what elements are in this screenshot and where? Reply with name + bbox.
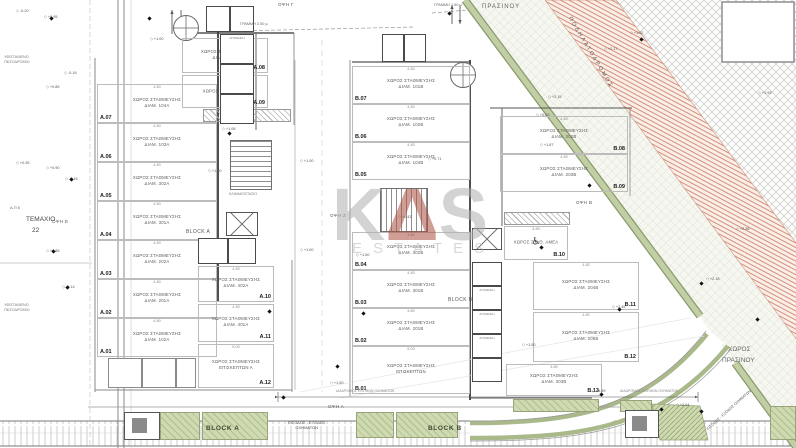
- sidewalk-note-line1: ΥΦΙΣΤΑΜΕΝΟ: [4, 303, 29, 307]
- stall-apartment-label: ΔΙΑΜ. 301Β: [399, 288, 424, 293]
- stall-dimension: 4.80: [98, 202, 216, 206]
- stall-label: ΧΩΡΟΣ ΣΤΑΘΜΕΥΣΗΣΔΙΑΜ. 301Α: [98, 213, 216, 225]
- stall-dimension: 4.80: [199, 267, 273, 271]
- sidewalk-note-top: ΥΦΙΣΤΑΜΕΝΟ ΠΕΖΟΔΡΟΜΙΟ: [4, 55, 30, 64]
- elevation-diamond-icon: ◇: [398, 215, 401, 219]
- facade-label: ΟΨΗ Β: [576, 200, 592, 205]
- block-a-bottom-label: BLOCK A: [206, 425, 240, 432]
- elevation-value: +1.00: [304, 248, 314, 252]
- sidewalk-note-line2: ΠΕΖΟΔΡΟΜΙΟ: [4, 308, 30, 312]
- stall-use-label: ΧΩΡΟΣ ΣΤΑΘΜΕΥΣΗΣ: [133, 174, 181, 179]
- stall-id: B.03: [355, 300, 367, 306]
- elevation-diamond-icon: ◇: [736, 227, 739, 231]
- parking-stall: 4.80ΧΩΡΟΣ ΣΤΑΘΜΕΥΣΗΣΔΙΑΜ. 103ΑA.06: [97, 123, 217, 162]
- storage-cell: ΑΠΟΘΗΚΗ: [472, 334, 502, 358]
- planter: [513, 399, 599, 412]
- corridor-label-right: ΔΙΑΔΡΟΜΟΣ ΕΛΙΓΜΩΝ ΟΧΗΜΑΤΩΝ: [620, 389, 678, 393]
- parking-stall: 4.80ΧΩΡΟΣ ΣΤΑΘΜΕΥΣΗΣΔΙΑΜ. 302ΑA.05: [97, 162, 217, 201]
- elevation-diamond-icon: ◇: [65, 177, 68, 181]
- parking-stall: 4.80ΧΩΡΟΣ ΣΤΑΘΜΕΥΣΗΣΔΙΑΜ. 102ΒB.06: [352, 104, 470, 142]
- elevation-diamond-icon: ◇: [64, 71, 67, 75]
- elevation-value: +1.93: [762, 91, 772, 95]
- elevation-marker: ◇+1.00: [150, 36, 164, 41]
- stall-apartment-label: ΔΙΑΜ. 102Β: [399, 122, 424, 127]
- stall-apartment-label: ΔΙΑΜ. 202Β: [552, 134, 577, 139]
- elevation-diamond-icon: ◇: [44, 15, 47, 19]
- block-b-label: BLOCK B: [448, 297, 472, 303]
- elevation-value: +0.35: [20, 161, 30, 165]
- stall-label: ΧΩΡΟΣ ΣΤΑΘΜΕΥΣΗΣΔΙΑΜ. 102Β: [353, 116, 469, 128]
- stall-label: ΧΩΡΟΣ ΣΤΑΘΜΕΥΣΗΣΔΙΑΜ. 101Β: [353, 78, 469, 90]
- planter: [356, 412, 394, 438]
- elevation-diamond-icon: ◇: [522, 343, 525, 347]
- elevation-diamond-icon: ◇: [706, 277, 709, 281]
- elevation-diamond-icon: ◇: [548, 95, 551, 99]
- stall-label: ΧΩΡΟΣ ΣΤΑΘΜΕΥΣΗΣΔΙΑΜ. 401Α: [199, 316, 273, 328]
- elevation-diamond-icon: ◇: [676, 403, 679, 407]
- elevation-marker: ◇+1.89: [592, 388, 606, 393]
- elevation-diamond-icon: ◇: [46, 85, 49, 89]
- elevation-marker: ◇+1.00: [300, 247, 314, 252]
- elevation-marker: ◇+1.87: [540, 142, 554, 147]
- elevation-value: +2.15: [552, 95, 562, 99]
- stall-apartment-label: ΔΙΑΜ. 103Α: [145, 142, 170, 147]
- stall-label: ΧΩΡΟΣ ΣΤΑΘΜΕΥΣΗΣΔΙΑΜ. 302Α: [98, 174, 216, 186]
- stall-label: ΧΩΡΟΣ ΣΤΑΘΜΕΥΣΗΣΔΙΑΜ. 303Β: [507, 373, 601, 385]
- elevation-diamond-icon: ◇: [208, 169, 211, 173]
- storage-cell: [230, 6, 254, 32]
- stall-use-label: ΧΩΡΟΣ ΣΤΑΘΜΕΥΣΗΣ: [212, 316, 260, 321]
- stall-id: A.03: [100, 271, 112, 277]
- stall-use-label: ΧΩΡΟΣ ΣΤΑΘΜΕΥΣΗΣ: [387, 116, 435, 121]
- elevation-diamond-icon: ◇: [630, 31, 633, 35]
- stall-label: ΧΩΡΟΣ ΣΤΑΘΜΕΥΣΗΣΔΙΑΜ. 103Α: [98, 135, 216, 147]
- setback-line-250-label: ΓΡΑΜΜΗ 2.50 μ: [240, 22, 268, 26]
- elevation-diamond-icon: ◇: [300, 159, 303, 163]
- elevation-diamond-icon: ◇: [356, 253, 359, 257]
- storage-cell: [206, 6, 230, 32]
- elevation-value: +0.63: [540, 113, 550, 117]
- stall-label: ΧΩΡΟΣ ΣΤΑΘΜΕΥΣΗΣΔΙΑΜ. 302Β: [353, 244, 469, 256]
- setback-line-150-label: ΓΡΑΜΜΗ 1.50 μ: [434, 3, 462, 7]
- stall-use-label: ΧΩΡΟΣ ΣΤΑΘΜΕΥΣΗΣ: [133, 330, 181, 335]
- sidewalk-note-bottom: ΥΦΙΣΤΑΜΕΝΟ ΠΕΖΟΔΡΟΜΙΟ: [4, 303, 30, 312]
- elevation-marker: ◇+0.43: [398, 214, 412, 219]
- stall-id: A.09: [253, 100, 265, 106]
- block-b-bottom-label: BLOCK B: [428, 425, 462, 432]
- stall-id: A.07: [100, 115, 112, 121]
- stall-dimension: 4.80: [353, 67, 469, 71]
- stall-dimension: 5.00: [199, 345, 273, 349]
- stall-use-label: ΧΩΡΟΣ ΣΤΑΘΜΕΥΣΗΣ: [212, 277, 260, 282]
- elevation-value: +0.43: [402, 215, 412, 219]
- stall-label: ΧΩΡΟΣ ΣΤΑΘΜΕΥΣΗΣΕΠΙΣΚΕΠΤΩΝ: [353, 363, 469, 375]
- storage-cell: [220, 94, 254, 124]
- elevation-marker: ◇-0.16: [64, 70, 77, 75]
- stall-dimension: 4.80: [353, 143, 469, 147]
- stair-block-a: [230, 140, 272, 190]
- parking-stall: 4.80ΧΩΡΟΣ ΣΤΑΘΜΕΥΣΗΣΔΙΑΜ. 402ΑA.10: [198, 266, 274, 302]
- stall-id: A.04: [100, 232, 112, 238]
- utility-box: [124, 412, 160, 440]
- parking-stall: 4.80ΧΩΡΟΣ ΣΤΑΘΜΕΥΣΗΣΔΙΑΜ. 104ΒB.05: [352, 142, 470, 180]
- stall-use-label: ΧΩΡΟΣ ΣΤΑΘΜΕΥΣΗΣ: [133, 213, 181, 218]
- stall-label: ΧΩΡΟΣ ΣΤΑΘΜΕΥΣΗΣΔΙΑΜ. 205Β: [534, 330, 638, 342]
- elevation-diamond-icon: ◇: [536, 113, 539, 117]
- stall-label: ΧΩΡΟΣ ΣΤΑΘΜΕΥΣΗΣΔΙΑΜ. 402Α: [199, 277, 273, 289]
- elevation-diamond-icon: ◇: [540, 143, 543, 147]
- stall-dimension: 4.80: [353, 271, 469, 275]
- storage-cell: ΑΠΟΘΗΚΗ: [472, 310, 502, 334]
- stall-dimension: 4.80: [98, 163, 216, 167]
- elevation-marker: ◇+1.93: [758, 90, 772, 95]
- vehicle-entry-label: ΕΙΣΟΔΟΣ - ΕΞΟΔΟΣ ΟΧΗΜΑΤΩΝ: [288, 420, 325, 430]
- elevation-value: +2.17: [608, 47, 618, 51]
- parking-stall: 4.80ΧΩΡΟΣ ΣΤΑΘΜΕΥΣΗΣΔΙΑΜ. 202ΒB.08: [500, 116, 628, 154]
- service-hatch-block-b: [504, 212, 570, 225]
- elevation-value: +1.87: [544, 143, 554, 147]
- stall-apartment-label: ΕΠΙΣΚΕΠΤΩΝ Α: [219, 365, 253, 370]
- parking-stall: 4.80ΧΩΡΟΣ ΣΤΑΘΜΕΥΣΗΣΔΙΑΜ. 204ΒB.11: [533, 262, 639, 310]
- facade-label: ΟΨΗ Ε: [52, 219, 68, 224]
- sidewalk-note-line2: ΠΕΖΟΔΡΟΜΙΟ: [4, 60, 30, 64]
- storage-cell: [472, 262, 502, 286]
- stall-label: ΧΩΡΟΣ ΣΤΑΘΜΕΥΣΗΣΔΙΑΜ. 301Β: [353, 282, 469, 294]
- elevation-diamond-icon: ◇: [46, 249, 49, 253]
- elevation-diamond-icon: ◇: [758, 91, 761, 95]
- storage-cell: [198, 238, 228, 264]
- stall-label: ΧΩΡΟΣ ΣΤΑΘΜΕΥΣΗΣΔΙΑΜ. 203Β: [501, 166, 627, 178]
- stall-apartment-label: ΔΙΑΜ. 402Α: [224, 283, 249, 288]
- stall-apartment-label: ΔΙΑΜ. 302Β: [399, 250, 424, 255]
- stall-dimension: 4.80: [353, 309, 469, 313]
- stall-id: A.08: [253, 65, 265, 71]
- stall-dimension: 5.00: [353, 347, 469, 351]
- elevation-diamond-icon: ◇: [330, 381, 333, 385]
- green-space-label-line1: ΧΩΡΟΣ: [728, 346, 751, 353]
- elevation-diamond-icon: ◇: [592, 389, 595, 393]
- stall-use-label: ΧΩΡΟΣ ΣΤΑΘΜΕΥΣΗΣ: [133, 135, 181, 140]
- stall-id: A.01: [100, 349, 112, 355]
- elevation-diamond-icon: ◇: [150, 37, 153, 41]
- elevation-value: +0.85: [50, 85, 60, 89]
- green-area-label-top: ΠΡΑΣΙΝΟΥ: [482, 4, 520, 10]
- stall-apartment-label: ΔΙΑΜ. 301Α: [145, 220, 170, 225]
- floor-plan-canvas: KΔS ESTATES ΠΡΑΣΙΝΟΥ ΠΟΔΗΛΑΤΟΔΡΟΜΟΣ ΧΩΡΟ…: [0, 0, 796, 448]
- elevation-value: +1.02: [634, 31, 644, 35]
- stall-id: A.10: [259, 294, 271, 300]
- storage-cell: [108, 358, 142, 388]
- stall-dimension: 4.80: [507, 365, 601, 369]
- stall-apartment-label: ΔΙΑΜ. 401Α: [224, 322, 249, 327]
- stall-label: ΧΩΡΟΣ ΣΤΑΘΜΕΥΣΗΣΔΙΑΜ. 204Β: [534, 279, 638, 291]
- stall-id: B.02: [355, 338, 367, 344]
- elevation-diamond-icon: ◇: [16, 161, 19, 165]
- elevation-diamond-icon: ◇: [222, 127, 225, 131]
- storage-cell: [220, 64, 254, 94]
- stall-apartment-label: ΔΙΑΜ. 104Β: [399, 160, 424, 165]
- facade-label: ΟΨΗ Α: [328, 404, 344, 409]
- sidewalk-note-line1: ΥΦΙΣΤΑΜΕΝΟ: [4, 55, 29, 59]
- stall-id: A.06: [100, 154, 112, 160]
- elevation-diamond-icon: ◇: [428, 157, 431, 161]
- elevation-marker: ◇+2.36: [736, 226, 750, 231]
- stall-label: ΧΩΡΟΣ ΣΤΑΘΜΕΥΣΗΣΕΠΙΣΚΕΠΤΩΝ Α: [199, 359, 273, 371]
- elevation-value: +2.36: [740, 227, 750, 231]
- stall-dimension: 4.80: [353, 105, 469, 109]
- stall-id: A.02: [100, 310, 112, 316]
- elevation-value: -0.16: [68, 71, 77, 75]
- stall-dimension: 4.80: [98, 124, 216, 128]
- elevator-block-a: [226, 212, 258, 236]
- stall-id: A.12: [259, 380, 271, 386]
- stall-id: B.08: [613, 146, 625, 152]
- stall-dimension: 4.80: [534, 313, 638, 317]
- stall-id: B.07: [355, 96, 367, 102]
- utility-box: [625, 410, 659, 438]
- elevation-marker: ◇+0.35: [16, 160, 30, 165]
- elevation-value: +1.50: [334, 381, 344, 385]
- entry-line2: ΟΧΗΜΑΤΩΝ: [295, 425, 318, 430]
- parking-stall: 4.80ΧΩΡΟΣ ΣΤΑΘΜΕΥΣΗΣΔΙΑΜ. 205ΒB.12: [533, 312, 639, 362]
- stall-use-label: ΧΩΡΟΣ ΣΤΑΘΜΕΥΣΗΣ: [387, 282, 435, 287]
- stall-id: B.12: [624, 354, 636, 360]
- elevation-diamond-icon: ◇: [612, 305, 615, 309]
- green-space-label-line2: ΠΡΑΣΙΝΟΥ: [722, 357, 755, 364]
- parking-stall: 4.80ΧΩΡΟΣ ΣΤΑΘΜΕΥΣΗΣΔΙΑΜ. 302ΒB.04: [352, 232, 470, 270]
- elevation-value: +0.71: [432, 157, 442, 161]
- stall-use-label: ΧΩΡΟΣ ΣΤΑΘΜΕΥΣΗΣ: [562, 330, 610, 335]
- elevation-marker: ◇+1.50: [522, 342, 536, 347]
- parking-stall: 5.00ΧΩΡΟΣ ΣΤΑΘΜΕΥΣΗΣΕΠΙΣΚΕΠΤΩΝB.01: [352, 346, 470, 394]
- plot-number: 22: [32, 227, 39, 234]
- storage-cell: ΑΠΟΘΗΚΗ: [472, 286, 502, 310]
- parking-stall: 4.80ΧΩΡΟΣ ΣΤΑΘΜΕΥΣΗΣΔΙΑΜ. 303ΒB.13: [506, 364, 602, 396]
- elevation-marker: ◇+1.02: [630, 30, 644, 35]
- stall-use-label: ΧΩΡΟΣ ΣΤΑΘΜΕΥΣΗΣ: [387, 78, 435, 83]
- elevation-value: +2.18: [710, 277, 720, 281]
- elevation-marker: ◇+2.64: [676, 402, 690, 407]
- stall-id: B.05: [355, 172, 367, 178]
- stall-use-label: ΧΩΡΟΣ ΣΤΑΘΜΕΥΣΗΣ: [562, 279, 610, 284]
- stall-apartment-label: ΔΙΑΜ. 102Α: [145, 337, 170, 342]
- storage-cell: [142, 358, 176, 388]
- corridor-label-left: ΔΙΑΔΡΟΜΟΣ ΕΛΙΓΜΩΝ ΟΧΗΜΑΤΩΝ: [336, 389, 394, 393]
- planter: [160, 412, 200, 440]
- elevation-value: +1.50: [212, 169, 222, 173]
- storage-cell: [472, 358, 502, 382]
- elevation-value: +2.64: [680, 403, 690, 407]
- stall-dimension: 4.80: [501, 155, 627, 159]
- elevation-marker: ◇+1.00: [300, 158, 314, 163]
- stall-use-label: ΧΩΡΟΣ ΣΤΑΘΜΕΥΣΗΣ: [530, 373, 578, 378]
- stall-dimension: 4.80: [501, 117, 627, 121]
- stall-id: B.04: [355, 262, 367, 268]
- stall-apartment-label: ΔΙΑΜ. 202Α: [145, 259, 170, 264]
- elevation-value: +1.06: [226, 127, 236, 131]
- stall-dimension: 4.80: [505, 227, 567, 231]
- elevation-marker: ◇+0.71: [428, 156, 442, 161]
- stall-apartment-label: ΔΙΑΜ. 205Β: [574, 336, 599, 341]
- stall-apartment-label: ΕΠΙΣΚΕΠΤΩΝ: [396, 369, 426, 374]
- stall-label: ΧΩΡΟΣ ΣΤΑΘΜΕΥΣΗΣΔΙΑΜ. 104Β: [353, 154, 469, 166]
- elevation-marker: ◇+1.50: [356, 252, 370, 257]
- elevation-value: +1.50: [360, 253, 370, 257]
- elevation-marker: ◇-0.20: [16, 8, 29, 13]
- elevation-diamond-icon: ◇: [46, 166, 49, 170]
- stall-id: A.05: [100, 193, 112, 199]
- stall-id: A.11: [260, 334, 271, 340]
- elevation-value: +1.00: [154, 37, 164, 41]
- planter: [770, 406, 796, 440]
- storage-cell: ΑΠΟΘΗΚΗ: [220, 34, 254, 64]
- stall-use-label: ΧΩΡΟΣ ΣΤΑΘΜΕΥΣΗΣ: [387, 363, 435, 368]
- stall-use-label: ΧΩΡΟΣ ΣΤΑΘΜΕΥΣΗΣ: [387, 244, 435, 249]
- stall-label: ΧΩΡΟΣ ΣΤΑΘΜΕΥΣΗΣΔΙΑΜ. 202Β: [501, 128, 627, 140]
- stall-use-label: ΧΩΡΟΣ ΣΤΑΘΜΕΥΣΗΣ: [212, 359, 260, 364]
- stair-block-b: [380, 188, 428, 232]
- elevation-marker: ◇+2.17: [604, 46, 618, 51]
- elevation-marker: ◇+2.15: [548, 94, 562, 99]
- stall-apartment-label: ΔΙΑΜ. 302Α: [145, 181, 170, 186]
- stall-use-label: ΧΩΡΟΣ ΣΤΑΘΜΕΥΣΗΣ: [133, 252, 181, 257]
- parking-stall: 4.80ΧΩΡΟΣ ΣΤΑΘΜΕΥΣΗΣΔΙΑΜ. 201ΒB.02: [352, 308, 470, 346]
- parking-stall: 4.80ΧΩΡΟΣ ΣΤΑΘ. ΑΜΕΑ♿B.10: [504, 226, 568, 260]
- ap6-label: Α.Π 6: [10, 205, 20, 210]
- parking-stall: 4.80ΧΩΡΟΣ ΣΤΑΘΜΕΥΣΗΣΔΙΑΜ. 101ΒB.07: [352, 66, 470, 104]
- stall-apartment-label: ΔΙΑΜ. 101Β: [399, 84, 424, 89]
- storage-cell: [382, 34, 404, 62]
- elevation-diamond-icon: ◇: [16, 9, 19, 13]
- parking-stall: 4.80ΧΩΡΟΣ ΣΤΑΘΜΕΥΣΗΣΔΙΑΜ. 401ΑA.11: [198, 304, 274, 342]
- elevator-block-b: [472, 228, 502, 250]
- stall-dimension: 4.80: [199, 305, 273, 309]
- block-a-label: BLOCK A: [186, 229, 210, 235]
- stall-use-label: ΧΩΡΟΣ ΣΤΑΘΜΕΥΣΗΣ: [133, 291, 181, 296]
- elevation-diamond-icon: ◇: [604, 47, 607, 51]
- plot-label: ΤΕΜΑΧΙΟ: [26, 216, 55, 223]
- stall-apartment-label: ΔΙΑΜ. 203Β: [552, 172, 577, 177]
- stall-use-label: ΧΩΡΟΣ ΣΤΑΘΜΕΥΣΗΣ: [387, 320, 435, 325]
- parking-stall: 5.00ΧΩΡΟΣ ΣΤΑΘΜΕΥΣΗΣΕΠΙΣΚΕΠΤΩΝ ΑA.12: [198, 344, 274, 388]
- elevation-value: +1.50: [526, 343, 536, 347]
- storage-cell: [404, 34, 426, 62]
- elevation-value: -0.20: [20, 9, 29, 13]
- stall-use-label: ΧΩΡΟΣ ΣΤΑΘΜΕΥΣΗΣ: [540, 128, 588, 133]
- stall-apartment-label: ΔΙΑΜ. 303Β: [542, 379, 567, 384]
- facade-label: ΟΨΗ Γ: [278, 2, 294, 7]
- elevation-value: +0.90: [50, 166, 60, 170]
- elevation-marker: ◇+1.50: [208, 168, 222, 173]
- stall-id: B.10: [553, 252, 565, 258]
- stall-label: ΧΩΡΟΣ ΣΤΑΘΜΕΥΣΗΣΔΙΑΜ. 201Β: [353, 320, 469, 332]
- stall-id: B.09: [613, 184, 625, 190]
- elevation-marker: ◇+2.18: [706, 276, 720, 281]
- stall-dimension: 4.80: [353, 233, 469, 237]
- stall-apartment-label: ΔΙΑΜ. 204Β: [574, 285, 599, 290]
- elevation-marker: ◇+0.90: [46, 165, 60, 170]
- elevation-marker: ◇+0.63: [536, 112, 550, 117]
- stall-dimension: 4.80: [534, 263, 638, 267]
- stall-id: B.06: [355, 134, 367, 140]
- storage-cell: [228, 238, 256, 264]
- elevation-value: +1.00: [304, 159, 314, 163]
- facade-label: ΟΨΗ Ζ: [330, 213, 346, 218]
- parking-stall: 4.80ΧΩΡΟΣ ΣΤΑΘΜΕΥΣΗΣΔΙΑΜ. 203ΒB.09: [500, 154, 628, 192]
- elevation-marker: ◇+0.85: [46, 84, 60, 89]
- stall-apartment-label: ΔΙΑΜ. 104Α: [145, 103, 170, 108]
- elevation-diamond-icon: ◇: [300, 248, 303, 252]
- storage-cell: [176, 358, 196, 388]
- stair-core-label: ΚΛΙΜΑΚΟΣΤΑΣΙΟ: [229, 192, 257, 196]
- stall-apartment-label: ΔΙΑΜ. 201Β: [399, 326, 424, 331]
- stall-apartment-label: ΔΙΑΜ. 201Α: [145, 298, 170, 303]
- stall-id: B.11: [625, 302, 636, 308]
- stall-use-label: ΧΩΡΟΣ ΣΤΑΘΜΕΥΣΗΣ: [540, 166, 588, 171]
- elevation-marker: ◇+1.50: [330, 380, 344, 385]
- stall-use-label: ΧΩΡΟΣ ΣΤΑΘΜΕΥΣΗΣ: [133, 96, 181, 101]
